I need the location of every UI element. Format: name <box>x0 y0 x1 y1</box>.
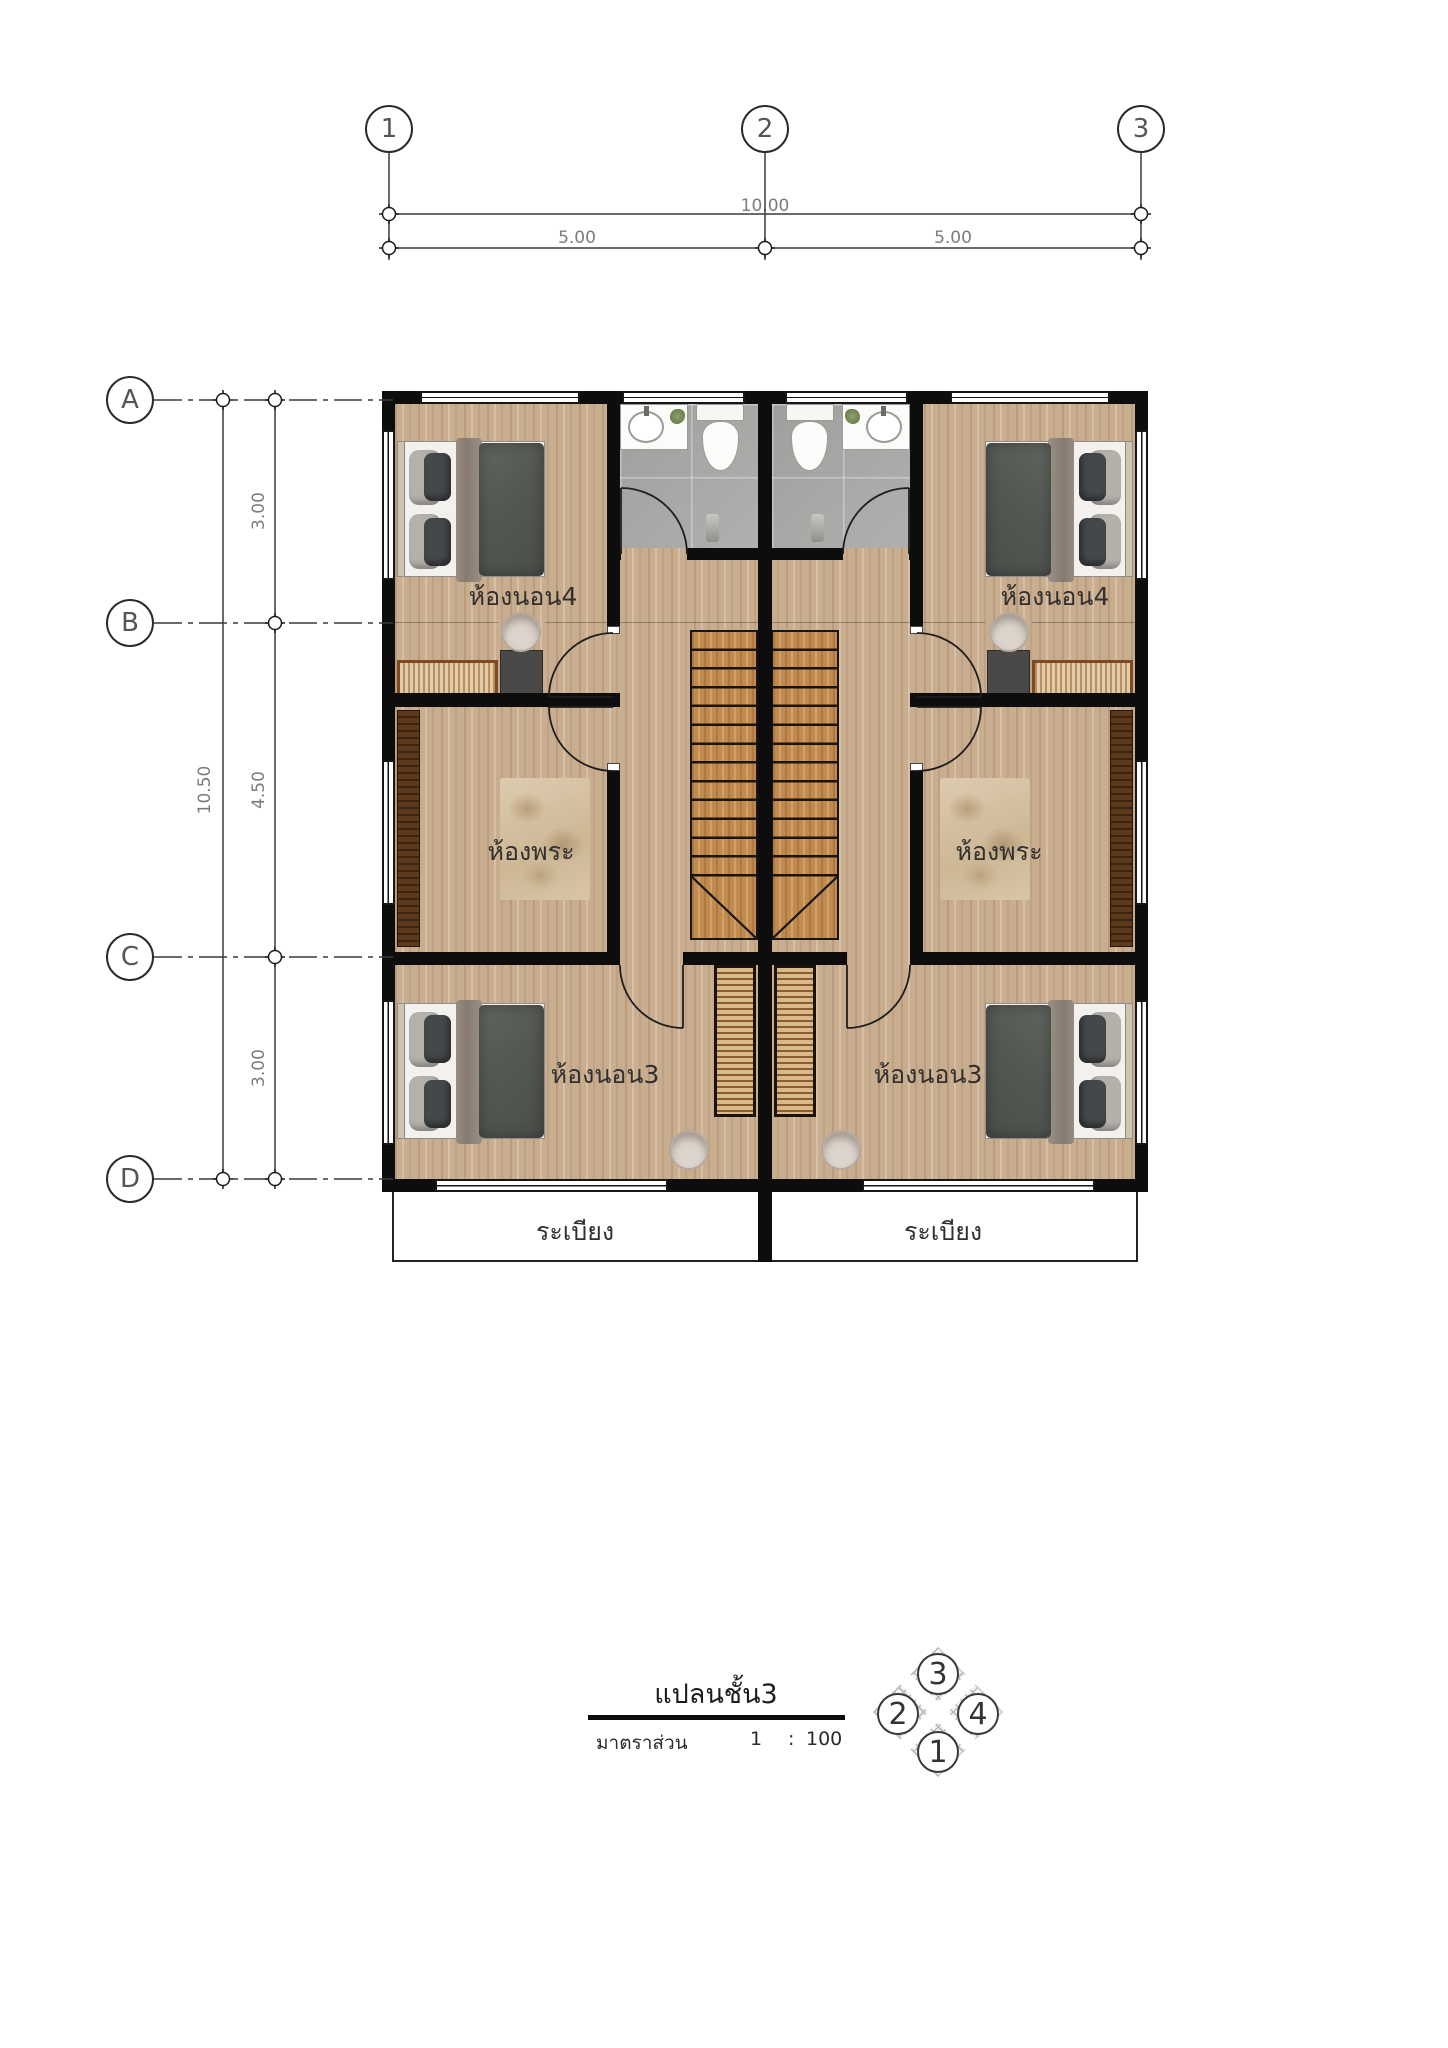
bathroom-fixtures-left <box>620 404 758 548</box>
grid-row-bubble-d: D <box>106 1155 154 1203</box>
room-label-bedroom4-left: ห้องนอน4 <box>428 577 618 617</box>
dimension-top-segment-2: 5.00 <box>913 228 993 248</box>
window-east-bedroom4 <box>1135 430 1148 580</box>
vanity-desk <box>987 650 1030 697</box>
altar-cabinet-right <box>1110 710 1133 947</box>
plant-icon <box>845 409 860 424</box>
door-jamb <box>910 626 923 634</box>
bed-headboard <box>1125 442 1132 576</box>
plan-title: แปลนชั้น3 <box>566 1672 866 1715</box>
scale-value-1: 1 <box>750 1728 762 1750</box>
shower-fixture <box>811 514 824 542</box>
bed-bedroom4-right <box>985 441 1133 577</box>
wall-bath-south-right-b <box>772 548 843 560</box>
window-north-bath-left <box>622 391 745 404</box>
bed-pillow <box>1079 1015 1106 1063</box>
scale-separator: : <box>788 1728 794 1750</box>
dimension-top-segment-1: 5.00 <box>537 228 617 248</box>
dimension-left-segment-3: 3.00 <box>249 1028 269 1108</box>
stair-treads <box>773 632 837 879</box>
dimension-left-total: 10.50 <box>195 750 215 830</box>
window-west-prayer <box>382 760 395 905</box>
bed-pillow <box>1079 518 1106 566</box>
wall-prayer-north-left <box>395 693 620 707</box>
door-jamb <box>607 626 620 634</box>
dresser <box>397 660 498 697</box>
window-east-bedroom3 <box>1135 1000 1148 1145</box>
grid-column-bubble-3: 3 <box>1117 105 1165 153</box>
wall-bath-south-left-a <box>607 548 621 560</box>
compass-bubble-left: 2 <box>877 1693 919 1735</box>
wall-bath-south-right-a <box>909 548 923 560</box>
bed-pillow <box>424 453 451 501</box>
window-north-bath-right <box>785 391 908 404</box>
stair-flight-right <box>771 630 839 940</box>
vanity-group-right <box>920 610 1135 700</box>
vanity-chair <box>501 612 541 652</box>
window-west-bedroom4 <box>382 430 395 580</box>
window-east-prayer <box>1135 760 1148 905</box>
wall-c-left-b <box>683 952 758 965</box>
title-underline <box>588 1715 845 1720</box>
armchair-bedroom3-right <box>821 1130 861 1170</box>
wall-c-right-b <box>772 952 847 965</box>
grid-row-bubble-b: B <box>106 599 154 647</box>
wall-c-right-a <box>910 952 1135 965</box>
stair-treads <box>692 632 756 879</box>
room-label-bedroom3-right: ห้องนอน3 <box>833 1055 1023 1095</box>
bed-sheet <box>1048 1000 1074 1144</box>
dresser <box>1032 660 1133 697</box>
room-label-prayer-left: ห้องพระ <box>436 832 626 872</box>
stair-flight-left <box>690 630 758 940</box>
compass-bubble-right: 4 <box>957 1693 999 1735</box>
bed-blanket <box>986 443 1051 576</box>
door-jamb <box>910 763 923 771</box>
toilet-tank <box>786 404 834 421</box>
compass-bubble-top: 3 <box>917 1653 959 1695</box>
vanity-desk <box>500 650 543 697</box>
room-label-bedroom3-left: ห้องนอน3 <box>510 1055 700 1095</box>
bed-pillow <box>424 1080 451 1128</box>
toilet-bowl <box>702 421 739 471</box>
wall-interior-right-corridor-upper <box>910 404 923 633</box>
bathroom-fixtures-right <box>772 404 910 548</box>
bed-bedroom4-left <box>397 441 545 577</box>
toilet-bowl <box>791 421 828 471</box>
bed-headboard <box>1125 1004 1132 1138</box>
grid-row-bubble-a: A <box>106 376 154 424</box>
room-label-prayer-right: ห้องพระ <box>904 832 1094 872</box>
floor-plan-sheet: 1 2 3 A B C D 10.00 5.00 5.00 10.50 3.00… <box>0 0 1448 2048</box>
window-north-bedroom4-left <box>420 391 580 404</box>
door-jamb <box>607 763 620 771</box>
vanity-chair <box>989 612 1029 652</box>
bed-pillow <box>1079 453 1106 501</box>
bed-sheet <box>1048 438 1074 582</box>
window-south-bedroom3-left <box>435 1179 668 1192</box>
toilet-tank <box>696 404 744 421</box>
faucet-icon <box>881 406 886 416</box>
closet-left <box>714 965 756 1117</box>
window-west-bedroom3 <box>382 1000 395 1145</box>
grid-column-bubble-2: 2 <box>741 105 789 153</box>
room-label-bedroom4-right: ห้องนอน4 <box>960 577 1150 617</box>
window-south-bedroom3-right <box>862 1179 1095 1192</box>
compass-bubble-bottom: 1 <box>917 1731 959 1773</box>
key-plan-compass: 3 2 4 1 <box>870 1644 1006 1780</box>
bed-pillow <box>424 1015 451 1063</box>
shower-fixture <box>706 514 719 542</box>
dimension-top-total: 10.00 <box>725 196 805 216</box>
wall-prayer-north-right <box>910 693 1135 707</box>
bed-headboard <box>398 1004 405 1138</box>
room-label-balcony-right: ระเบียง <box>848 1212 1038 1252</box>
bed-headboard <box>398 442 405 576</box>
dimension-left-segment-2: 4.50 <box>249 750 269 830</box>
bed-pillow <box>1079 1080 1106 1128</box>
closet-right <box>774 965 816 1117</box>
vanity-group-left <box>395 610 610 700</box>
wall-c-left-a <box>395 952 620 965</box>
window-north-bedroom4-right <box>950 391 1110 404</box>
dimension-left-segment-1: 3.00 <box>249 471 269 551</box>
bed-pillow <box>424 518 451 566</box>
room-label-balcony-left: ระเบียง <box>480 1212 670 1252</box>
armchair-bedroom3-left <box>669 1130 709 1170</box>
bed-blanket <box>479 443 544 576</box>
grid-row-bubble-c: C <box>106 933 154 981</box>
wall-party-center <box>758 391 772 1262</box>
wall-bath-south-left-b <box>687 548 758 560</box>
scale-label: มาตราส่วน <box>596 1728 688 1758</box>
grid-column-bubble-1: 1 <box>365 105 413 153</box>
faucet-icon <box>644 406 649 416</box>
scale-value-2: 100 <box>806 1728 842 1750</box>
altar-cabinet-left <box>397 710 420 947</box>
